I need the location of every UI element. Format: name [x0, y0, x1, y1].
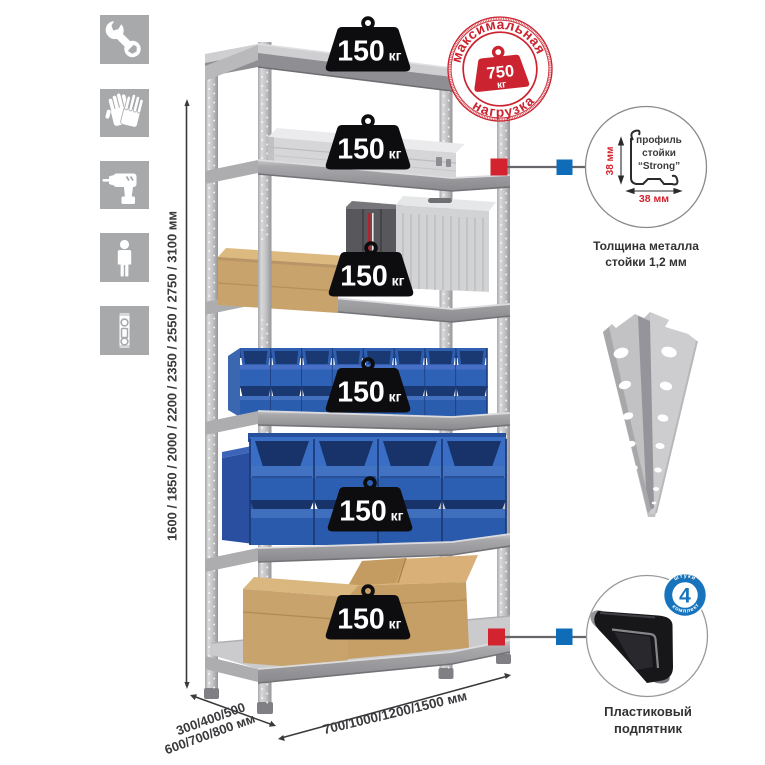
- svg-text:Толщина металла: Толщина металла: [593, 239, 699, 253]
- svg-text:стойки: стойки: [642, 148, 676, 159]
- svg-text:стойки 1,2 мм: стойки 1,2 мм: [605, 255, 687, 269]
- svg-text:38 мм: 38 мм: [639, 193, 669, 205]
- svg-text:подпятник: подпятник: [614, 721, 683, 736]
- svg-text:38 мм: 38 мм: [605, 147, 616, 176]
- svg-text:4: 4: [679, 585, 691, 608]
- svg-text:Пластиковый: Пластиковый: [604, 704, 692, 719]
- svg-text:кг: кг: [497, 79, 507, 91]
- svg-text:профиль: профиль: [636, 134, 682, 146]
- svg-text:1600 / 1850 / 2000 / 2200 / 23: 1600 / 1850 / 2000 / 2200 / 2350 / 2550 …: [165, 211, 180, 541]
- svg-text:“Strong”: “Strong”: [638, 161, 680, 172]
